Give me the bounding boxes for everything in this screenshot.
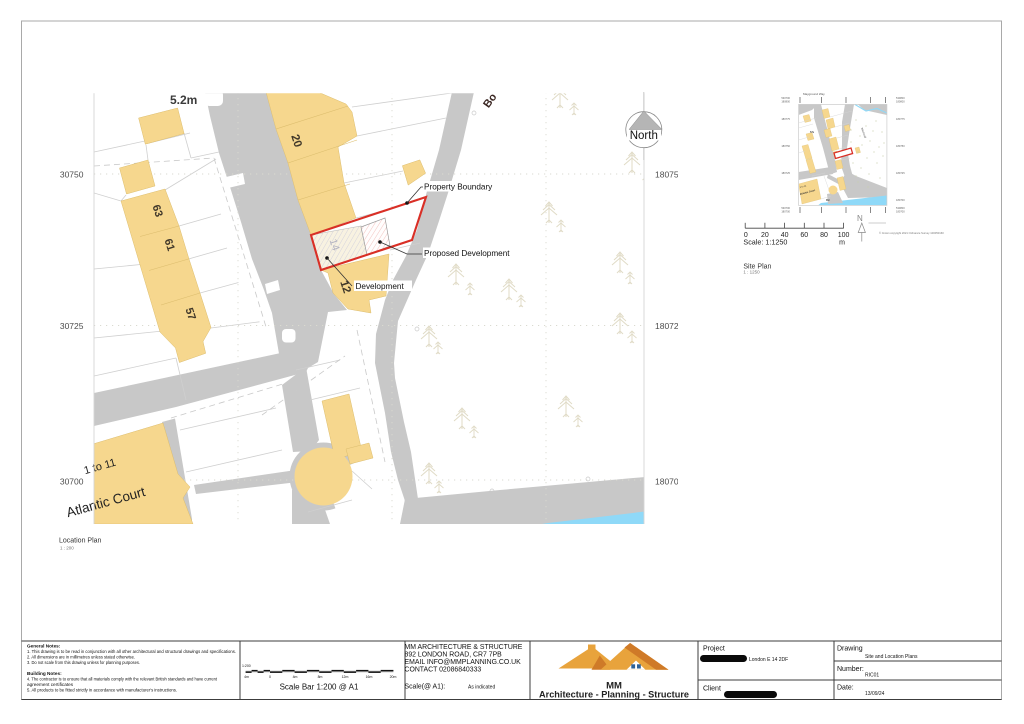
svg-text:Proposed Development: Proposed Development bbox=[424, 249, 510, 258]
svg-text:180775: 180775 bbox=[896, 117, 905, 121]
svg-text:180700: 180700 bbox=[896, 198, 905, 202]
svg-text:Number:: Number: bbox=[837, 666, 864, 673]
svg-text:60: 60 bbox=[800, 232, 808, 239]
svg-text:180700: 180700 bbox=[896, 210, 905, 214]
svg-text:Scale Bar 1:200 @ A1: Scale Bar 1:200 @ A1 bbox=[280, 683, 359, 692]
svg-text:North: North bbox=[630, 130, 658, 142]
svg-text:4. The contractor is to ensure: 4. The contractor is to ensure that all … bbox=[27, 677, 218, 682]
svg-text:12m: 12m bbox=[342, 675, 349, 679]
svg-text:180700: 180700 bbox=[781, 210, 790, 214]
svg-text:13/09/24: 13/09/24 bbox=[865, 691, 885, 697]
svg-text:Date:: Date: bbox=[837, 685, 854, 692]
svg-text:© Crown copyright 2021 Ordnanc: © Crown copyright 2021 Ordnance Survey 1… bbox=[879, 231, 944, 235]
svg-text:N: N bbox=[857, 214, 863, 223]
svg-text:0: 0 bbox=[269, 675, 271, 679]
svg-text:Site and Location Plans: Site and Location Plans bbox=[865, 654, 918, 660]
svg-text:Location Plan: Location Plan bbox=[59, 538, 102, 545]
svg-text:5. All products to be fitted s: 5. All products to be fitted strictly in… bbox=[27, 688, 177, 693]
svg-text:180800: 180800 bbox=[781, 100, 790, 104]
svg-text:57a: 57a bbox=[810, 131, 815, 134]
svg-text:8m: 8m bbox=[318, 675, 323, 679]
svg-text:m: m bbox=[839, 240, 845, 247]
svg-text:530800: 530800 bbox=[896, 206, 905, 210]
svg-text:1 : 1250: 1 : 1250 bbox=[743, 270, 760, 275]
svg-text:EMAIL INFO@MMPLANNING.CO.UK: EMAIL INFO@MMPLANNING.CO.UK bbox=[405, 659, 522, 666]
svg-text:Scale(@ A1):: Scale(@ A1): bbox=[405, 684, 446, 691]
svg-text:Building Notes:: Building Notes: bbox=[27, 671, 62, 676]
svg-text:530700: 530700 bbox=[781, 206, 790, 210]
svg-text:180725: 180725 bbox=[781, 171, 790, 175]
svg-text:Mayground Way: Mayground Way bbox=[803, 92, 825, 96]
svg-text:London E 14 2DF: London E 14 2DF bbox=[749, 657, 788, 663]
svg-text:180775: 180775 bbox=[781, 117, 790, 121]
svg-text:4m: 4m bbox=[293, 675, 298, 679]
svg-text:20m: 20m bbox=[390, 675, 397, 679]
svg-text:Development: Development bbox=[356, 282, 405, 291]
svg-text:General Notes:: General Notes: bbox=[27, 644, 61, 649]
svg-text:Drawing: Drawing bbox=[837, 646, 863, 653]
svg-text:Architecture - Planning - Stru: Architecture - Planning - Structure bbox=[539, 690, 689, 700]
svg-text:Property Boundary: Property Boundary bbox=[424, 183, 493, 192]
svg-text:Scale: 1:1250: Scale: 1:1250 bbox=[743, 238, 787, 247]
svg-text:1:200: 1:200 bbox=[242, 664, 251, 668]
svg-text:agreement certificates: agreement certificates bbox=[27, 682, 74, 687]
svg-text:100: 100 bbox=[838, 232, 850, 239]
svg-text:180750: 180750 bbox=[896, 144, 905, 148]
svg-text:530700: 530700 bbox=[781, 96, 790, 100]
svg-text:180750: 180750 bbox=[781, 144, 790, 148]
svg-text:180800: 180800 bbox=[896, 100, 905, 104]
svg-text:80: 80 bbox=[820, 232, 828, 239]
svg-text:Rd: Rd bbox=[826, 198, 830, 202]
svg-text:4m: 4m bbox=[244, 675, 249, 679]
svg-text:As indicated: As indicated bbox=[468, 685, 495, 691]
svg-text:16m: 16m bbox=[366, 675, 373, 679]
svg-text:1. This drawing is to be read: 1. This drawing is to be read in conjunc… bbox=[27, 649, 236, 654]
svg-text:MM ARCHITECTURE & STRUCTURE: MM ARCHITECTURE & STRUCTURE bbox=[405, 644, 523, 651]
svg-text:5.2m: 5.2m bbox=[170, 93, 197, 107]
svg-text:3. Do not scale from this draw: 3. Do not scale from this drawing unless… bbox=[27, 660, 140, 665]
svg-text:2. All dimensions are in milli: 2. All dimensions are in millimetres unl… bbox=[27, 655, 135, 660]
svg-text:Project: Project bbox=[703, 646, 725, 653]
svg-text:RIC01: RIC01 bbox=[865, 673, 879, 679]
svg-text:180725: 180725 bbox=[896, 171, 905, 175]
svg-text:892 LONDON ROAD, CR7 7PB: 892 LONDON ROAD, CR7 7PB bbox=[405, 652, 503, 659]
svg-text:Client: Client bbox=[703, 686, 721, 693]
svg-text:CONTACT 02086840333: CONTACT 02086840333 bbox=[405, 667, 482, 674]
svg-text:530800: 530800 bbox=[896, 96, 905, 100]
svg-text:1 : 200: 1 : 200 bbox=[60, 546, 74, 551]
